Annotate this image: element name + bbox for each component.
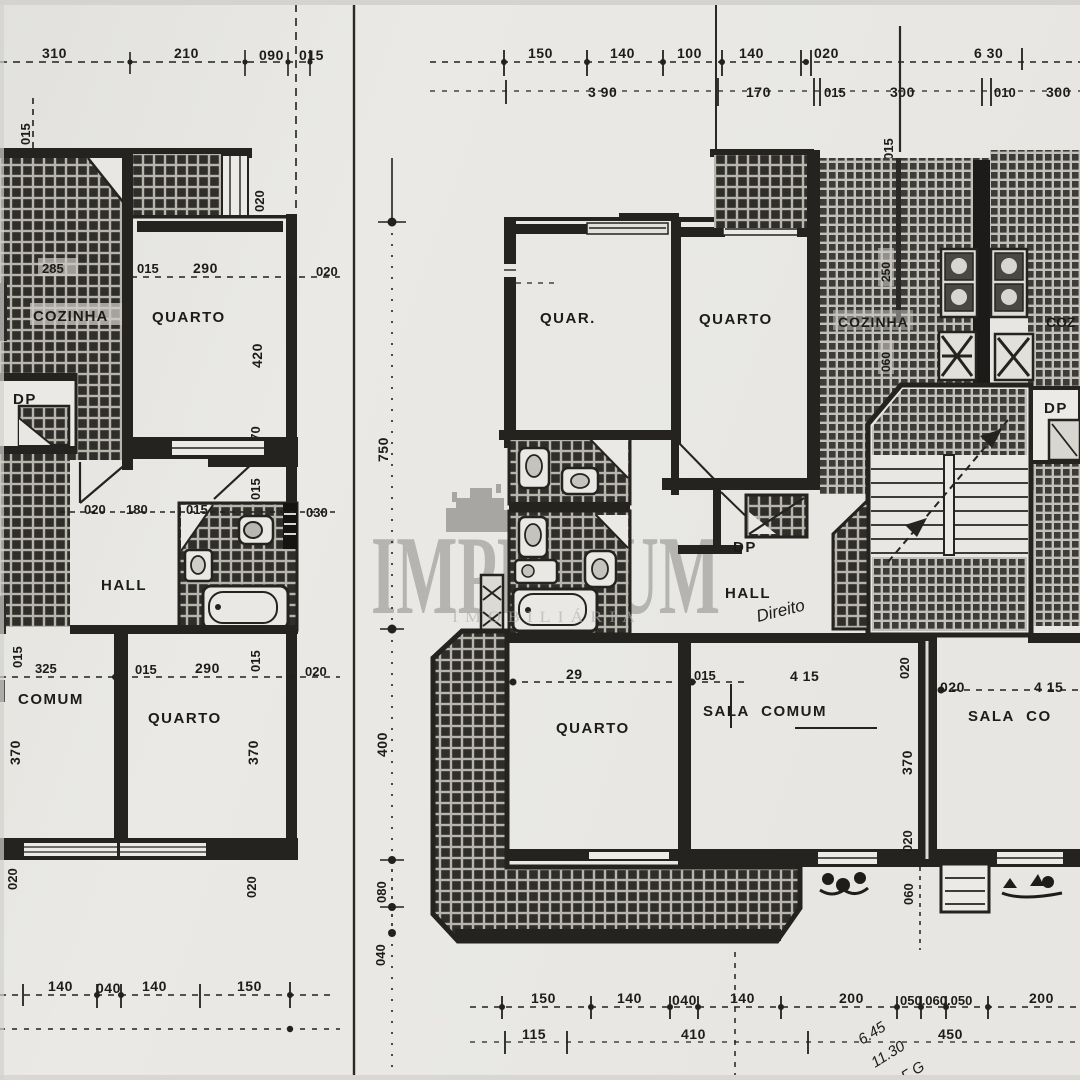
- svg-text:020: 020: [252, 190, 267, 212]
- svg-text:170: 170: [746, 84, 771, 100]
- svg-text:DP: DP: [1044, 400, 1068, 417]
- svg-text:015: 015: [137, 261, 159, 276]
- svg-text:140: 140: [142, 978, 167, 994]
- svg-text:QUARTO: QUARTO: [152, 309, 226, 326]
- svg-text:QUARTO: QUARTO: [699, 311, 773, 328]
- svg-text:6 30: 6 30: [974, 45, 1003, 61]
- svg-text:750: 750: [375, 437, 391, 462]
- svg-text:HALL: HALL: [725, 585, 771, 602]
- svg-text:015: 015: [299, 47, 324, 63]
- svg-text:180: 180: [126, 502, 148, 517]
- svg-text:060: 060: [901, 883, 916, 905]
- svg-text:290: 290: [193, 260, 218, 276]
- svg-text:015: 015: [824, 85, 846, 100]
- svg-text:015: 015: [694, 668, 716, 683]
- svg-text:020: 020: [900, 830, 915, 852]
- svg-text:370: 370: [899, 750, 915, 775]
- svg-text:420: 420: [249, 343, 265, 368]
- svg-text:QUAR.: QUAR.: [540, 310, 596, 327]
- svg-text:370: 370: [245, 740, 261, 765]
- svg-text:400: 400: [374, 732, 390, 757]
- svg-text:COZINHA: COZINHA: [838, 314, 909, 330]
- svg-text:020: 020: [244, 876, 259, 898]
- svg-text:015: 015: [248, 478, 263, 500]
- svg-text:QUARTO: QUARTO: [148, 710, 222, 727]
- svg-text:4 15: 4 15: [1034, 679, 1063, 695]
- svg-text:COZ: COZ: [1046, 314, 1076, 330]
- svg-text:310: 310: [42, 45, 67, 61]
- svg-text:040: 040: [373, 944, 388, 966]
- svg-text:020: 020: [84, 502, 106, 517]
- svg-text:150: 150: [528, 45, 553, 61]
- svg-text:250: 250: [879, 262, 893, 282]
- svg-text:015: 015: [881, 138, 896, 160]
- svg-text:3 90: 3 90: [588, 84, 617, 100]
- svg-text:140: 140: [739, 45, 764, 61]
- svg-text:150: 150: [531, 990, 556, 1006]
- svg-text:115: 115: [522, 1026, 546, 1042]
- svg-text:IMOBILIÁRIA: IMOBILIÁRIA: [452, 607, 642, 626]
- svg-text:030: 030: [306, 505, 328, 520]
- svg-text:410: 410: [681, 1026, 706, 1042]
- svg-text:140: 140: [617, 990, 642, 1006]
- svg-text:020: 020: [897, 657, 912, 679]
- svg-text:015: 015: [248, 650, 263, 672]
- svg-text:SALA COMUM: SALA COMUM: [703, 703, 827, 720]
- svg-text:020: 020: [814, 45, 839, 61]
- svg-text:080: 080: [374, 881, 389, 903]
- svg-text:150: 150: [237, 978, 262, 994]
- svg-text:285: 285: [42, 261, 64, 276]
- svg-text:020: 020: [5, 868, 20, 890]
- svg-text:325: 325: [35, 661, 57, 676]
- svg-text:015: 015: [18, 123, 33, 145]
- svg-text:200: 200: [839, 990, 864, 1006]
- svg-text:COZINHA: COZINHA: [33, 308, 108, 325]
- svg-text:HALL: HALL: [101, 577, 147, 594]
- svg-text:DP: DP: [733, 539, 757, 556]
- svg-text:210: 210: [174, 45, 199, 61]
- svg-text:290: 290: [195, 660, 220, 676]
- svg-text:015: 015: [10, 646, 25, 668]
- svg-text:140: 140: [48, 978, 73, 994]
- svg-text:29: 29: [566, 666, 583, 682]
- svg-text:020: 020: [305, 664, 327, 679]
- svg-text:QUARTO: QUARTO: [556, 720, 630, 737]
- svg-text:020: 020: [316, 264, 338, 279]
- svg-text:140: 140: [610, 45, 635, 61]
- svg-text:020: 020: [940, 679, 965, 695]
- svg-text:015: 015: [135, 662, 157, 677]
- svg-text:300: 300: [1046, 84, 1071, 100]
- svg-text:090: 090: [259, 47, 284, 63]
- svg-text:SALA CO: SALA CO: [968, 708, 1052, 725]
- svg-text:200: 200: [1029, 990, 1054, 1006]
- svg-text:300: 300: [890, 84, 915, 100]
- svg-text:050.060.050: 050.060.050: [900, 993, 972, 1008]
- svg-text:015: 015: [186, 502, 208, 517]
- svg-text:370: 370: [7, 740, 23, 765]
- svg-text:450: 450: [938, 1026, 963, 1042]
- svg-text:4 15: 4 15: [790, 668, 819, 684]
- svg-text:060: 060: [879, 352, 893, 372]
- svg-text:040: 040: [672, 992, 697, 1008]
- svg-text:COMUM: COMUM: [18, 691, 84, 708]
- svg-text:100: 100: [677, 45, 702, 61]
- svg-text:010: 010: [994, 85, 1016, 100]
- svg-text:140: 140: [730, 990, 755, 1006]
- svg-text:040: 040: [96, 980, 121, 996]
